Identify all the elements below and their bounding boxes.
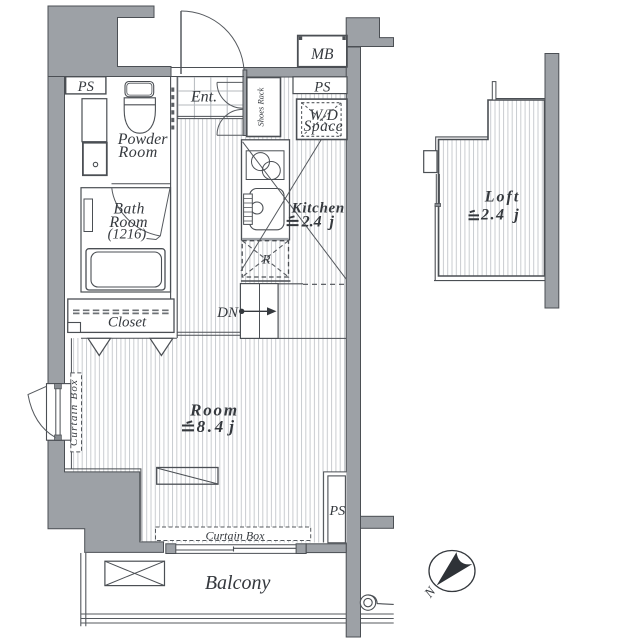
svg-text:Balcony: Balcony xyxy=(205,572,271,594)
svg-text:2.4: 2.4 xyxy=(301,213,322,230)
svg-text:Closet: Closet xyxy=(108,314,147,330)
svg-text:8.4: 8.4 xyxy=(197,417,226,436)
svg-text:Curtain Box: Curtain Box xyxy=(206,528,266,542)
svg-text:Shoes Rack: Shoes Rack xyxy=(256,87,266,126)
svg-text:2.4: 2.4 xyxy=(480,207,506,224)
svg-text:Loft: Loft xyxy=(484,188,521,205)
svg-text:MB: MB xyxy=(310,46,334,63)
svg-text:DN: DN xyxy=(216,305,239,321)
svg-text:Ent.: Ent. xyxy=(190,89,217,106)
svg-text:PS: PS xyxy=(329,504,346,519)
svg-text:Space: Space xyxy=(304,118,344,135)
svg-text:PS: PS xyxy=(313,79,331,95)
svg-text:(1216): (1216) xyxy=(108,227,147,243)
svg-text:Room: Room xyxy=(118,144,158,161)
svg-text:PS: PS xyxy=(77,79,95,95)
svg-text:R: R xyxy=(261,252,270,267)
